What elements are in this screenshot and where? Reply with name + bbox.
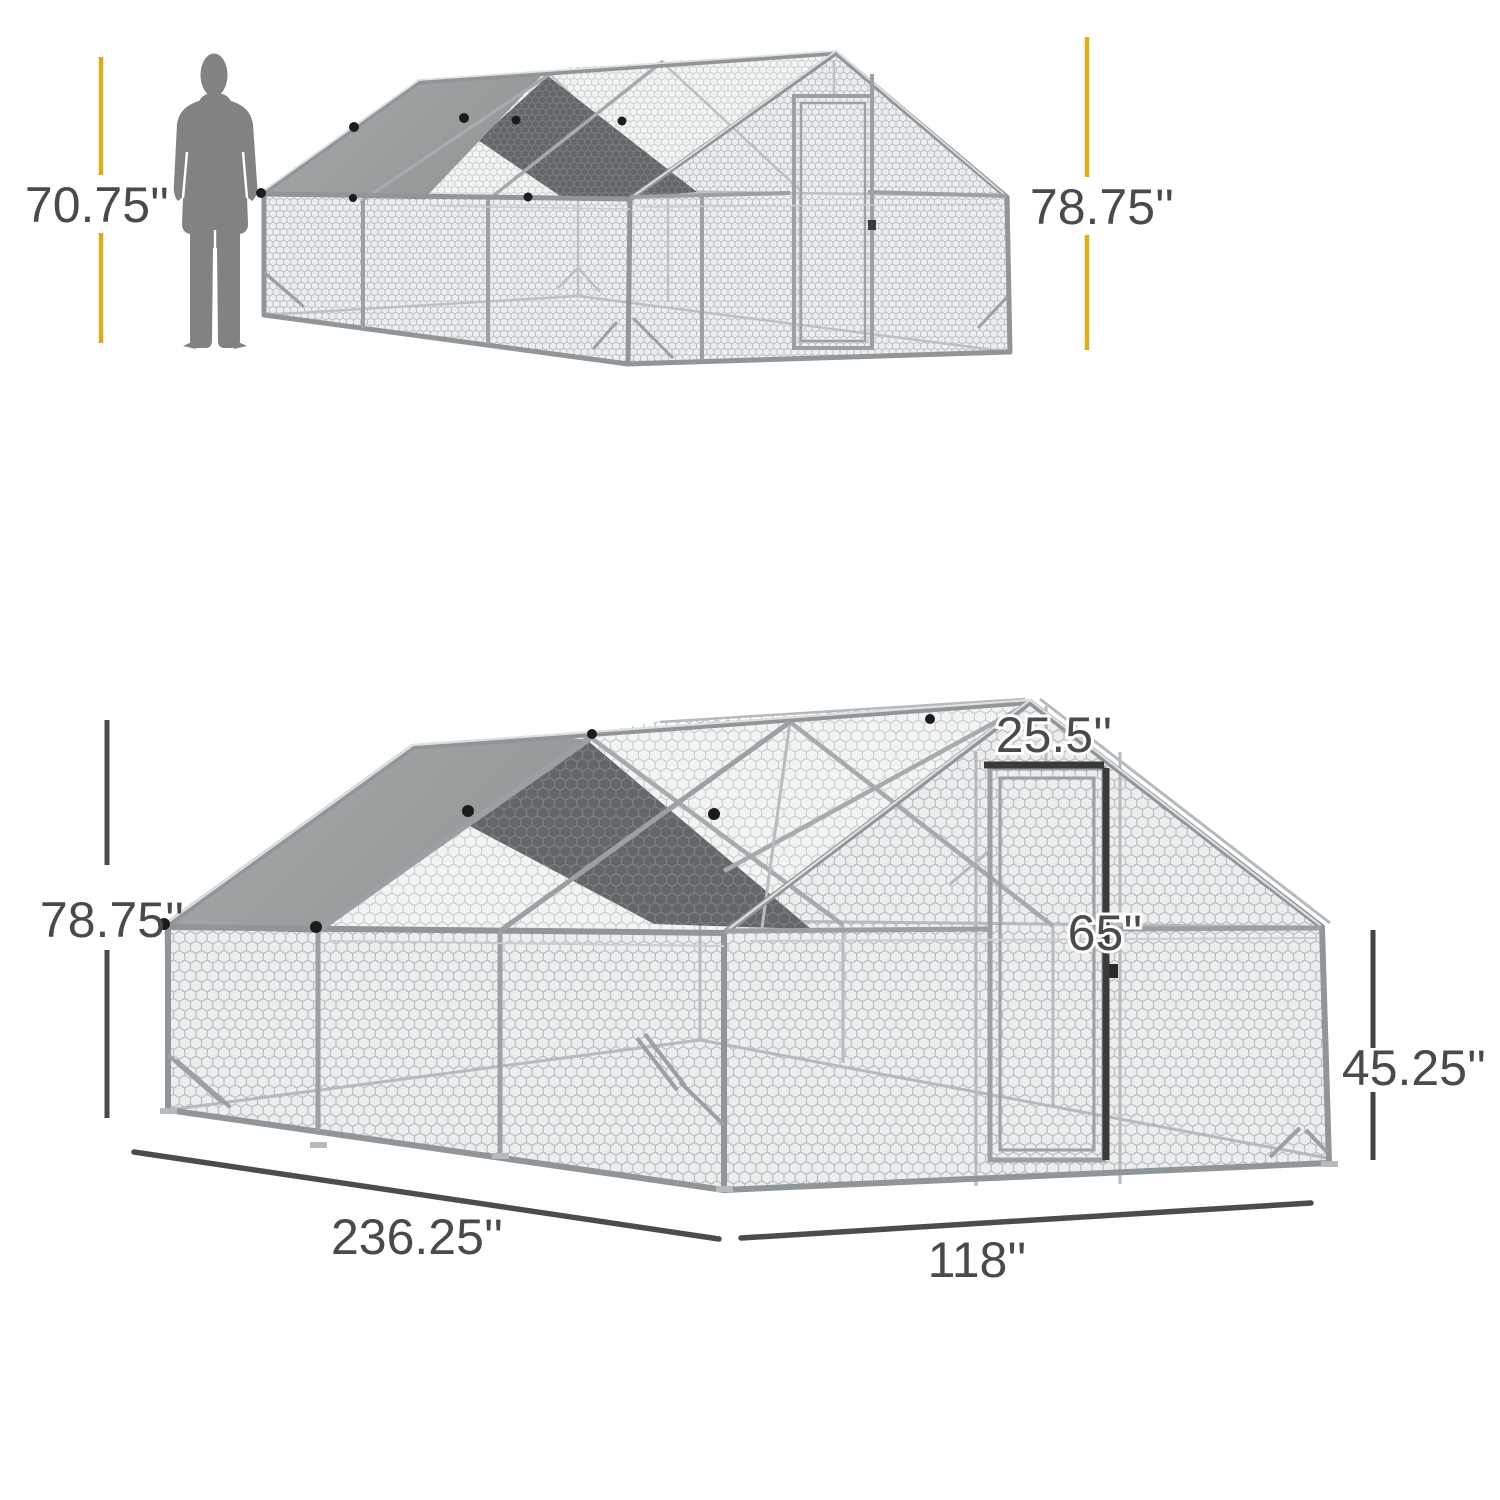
svg-text:70.75'': 70.75'' (25, 177, 169, 233)
svg-text:45.25'': 45.25'' (1342, 1040, 1486, 1096)
svg-text:118'': 118'' (928, 1232, 1027, 1288)
svg-text:78.75'': 78.75'' (40, 892, 184, 948)
svg-text:78.75'': 78.75'' (1030, 179, 1174, 235)
svg-text:25.5'': 25.5'' (996, 707, 1112, 763)
svg-text:236.25'': 236.25'' (331, 1209, 503, 1265)
svg-text:65'': 65'' (1068, 905, 1143, 961)
